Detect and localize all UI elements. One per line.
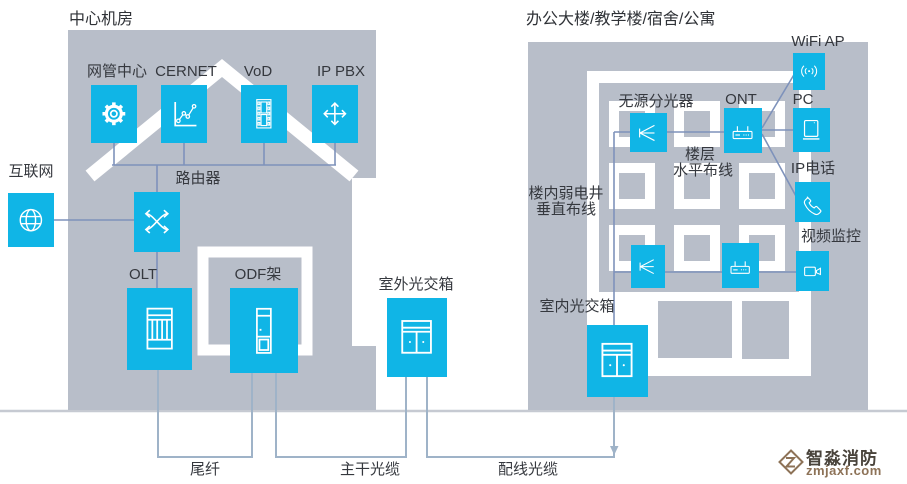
indoor-box-node [587,325,648,397]
ont-label: ONT [725,92,757,109]
rack-icon [133,295,186,362]
router-node [134,192,180,252]
indoor-box-label: 室内光交箱 [539,299,614,316]
diagram-canvas: 中心机房 办公大楼/教学楼/宿舍/公寓 互联网 网管中心 CERNET VoD … [0,0,907,484]
wifi-ap-label: WiFi AP [791,34,844,51]
olt-node [127,288,192,370]
cctv-node [796,251,829,291]
chart-icon [165,90,203,138]
globe-icon [12,198,50,242]
pc-label: PC [793,92,814,109]
ip-phone-label: IP电话 [791,161,835,178]
distribution-cable-label: 配线光缆 [498,462,558,479]
nmc-node [91,85,137,143]
cernet-label: CERNET [155,64,217,81]
cable-arrowhead [610,446,619,455]
splitter1-node [630,113,667,152]
olt-label: OLT [129,267,157,284]
pc-node [793,108,830,152]
right-building-shape [528,42,868,410]
wifi-icon [796,56,822,86]
video-camera-icon [799,255,826,288]
router-label: 路由器 [175,171,220,188]
outdoor-box-label: 室外光交箱 [378,277,453,294]
gear-icon [95,90,133,138]
splitter-icon [633,117,663,149]
ippbx-label: IP PBX [317,64,365,81]
cross-arrows-icon [316,90,354,138]
splitter-icon [634,249,662,284]
odf-node [230,288,298,373]
outdoor-box-node [387,298,447,377]
ip-phone-node [795,182,830,222]
cernet-node [161,85,207,143]
splitter2-node [631,245,665,288]
splitter-label: 无源分光器 [618,94,693,111]
vod-label: VoD [244,64,272,81]
left-building-title: 中心机房 [69,5,133,29]
switch-icon [138,197,176,246]
ont1-node [724,108,762,153]
cross-connect-cabinet-icon [592,331,642,390]
riser-label-line2: 垂直布线 [536,202,596,219]
floor-wiring-label-line2: 水平布线 [673,163,733,180]
ippbx-node [312,85,358,143]
cabinet-tall-icon [236,296,292,366]
internet-label: 互联网 [8,164,53,181]
ont-router-icon [725,247,755,284]
watermark-logo-icon [778,449,804,475]
ont-router-icon [727,112,758,149]
phone-icon [798,186,827,219]
cctv-label: 视频监控 [801,229,861,246]
pigtail-cable-label: 尾纤 [190,462,220,479]
wifi-ap-node [793,53,825,90]
right-building-title: 办公大楼/教学楼/宿舍/公寓 [526,5,715,29]
vod-node [241,85,287,143]
nmc-label: 网管中心 [87,64,147,81]
internet-node [8,193,54,247]
trunk-cable-label: 主干光缆 [340,462,400,479]
film-icon [245,90,283,138]
ont2-node [722,243,759,288]
cross-connect-cabinet-icon [392,305,441,370]
watermark-domain: zmjaxf.com [806,463,882,478]
odf-label: ODF架 [235,267,282,284]
monitor-icon [796,112,826,148]
